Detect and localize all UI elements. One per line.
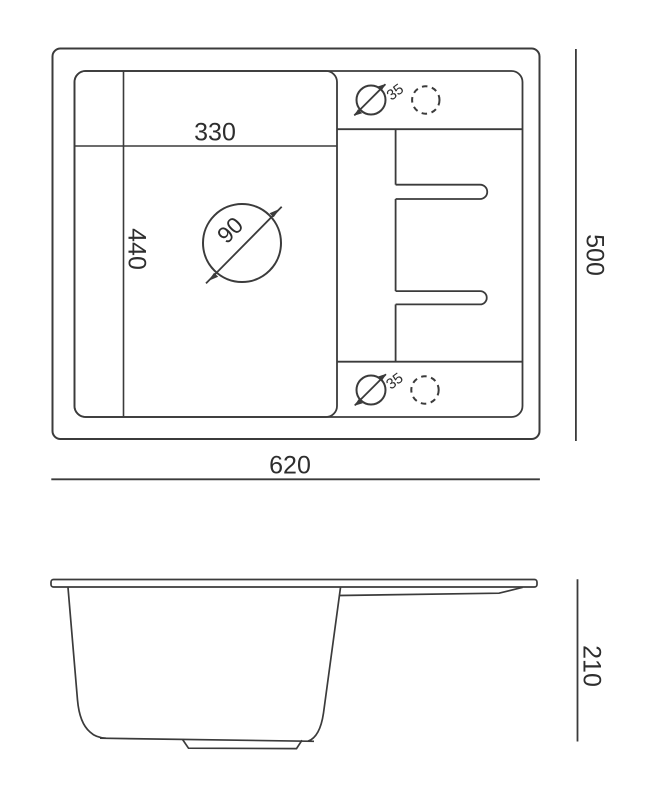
svg-text:210: 210: [578, 645, 606, 687]
svg-text:500: 500: [581, 234, 609, 276]
svg-text:620: 620: [269, 452, 311, 480]
svg-text:440: 440: [123, 228, 151, 270]
svg-text:330: 330: [194, 119, 236, 147]
